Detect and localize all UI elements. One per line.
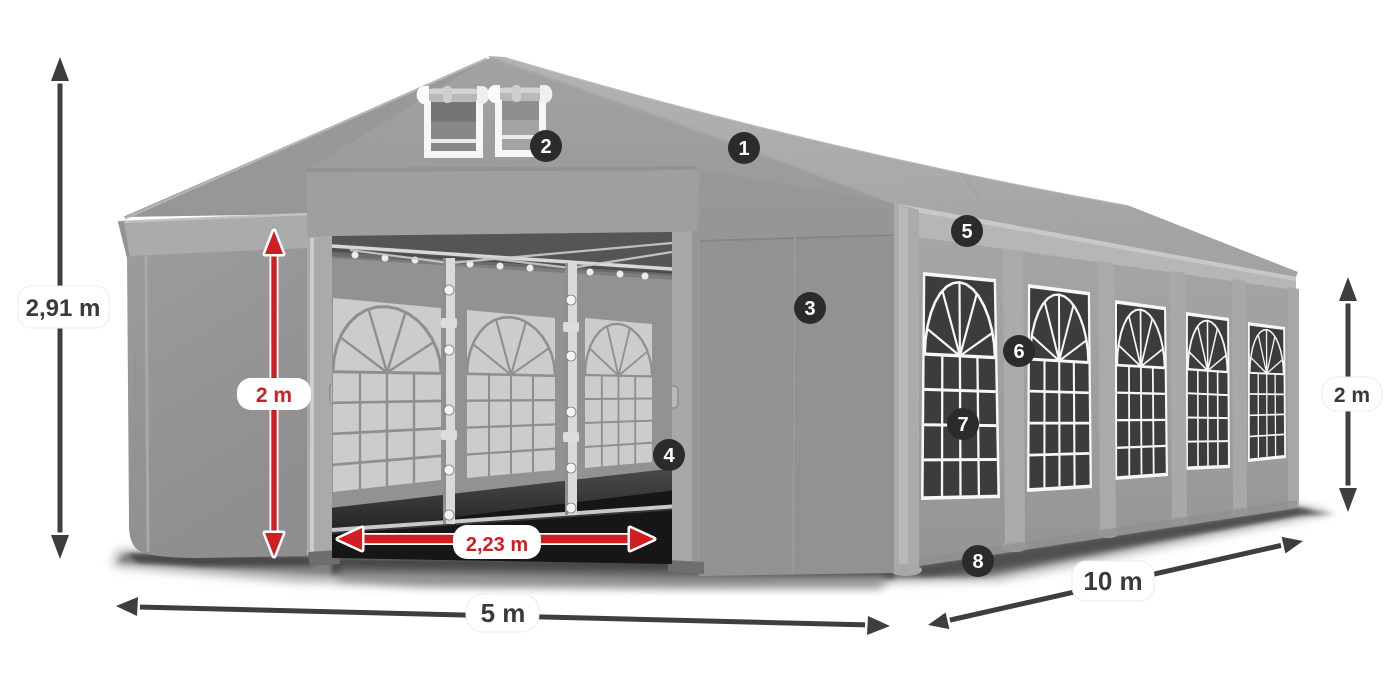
svg-text:2 m: 2 m (1334, 384, 1370, 407)
svg-text:10 m: 10 m (1083, 566, 1142, 596)
svg-text:2 m: 2 m (256, 384, 292, 407)
svg-text:4: 4 (663, 445, 675, 467)
svg-text:5 m: 5 m (481, 598, 526, 628)
svg-text:8: 8 (972, 551, 983, 573)
svg-text:7: 7 (957, 414, 968, 436)
svg-text:1: 1 (738, 138, 749, 160)
svg-text:3: 3 (804, 298, 815, 320)
svg-text:2: 2 (540, 136, 551, 158)
svg-text:2,23 m: 2,23 m (466, 534, 528, 556)
svg-text:6: 6 (1013, 341, 1024, 363)
svg-text:5: 5 (961, 221, 972, 243)
svg-text:2,91 m: 2,91 m (26, 295, 101, 322)
